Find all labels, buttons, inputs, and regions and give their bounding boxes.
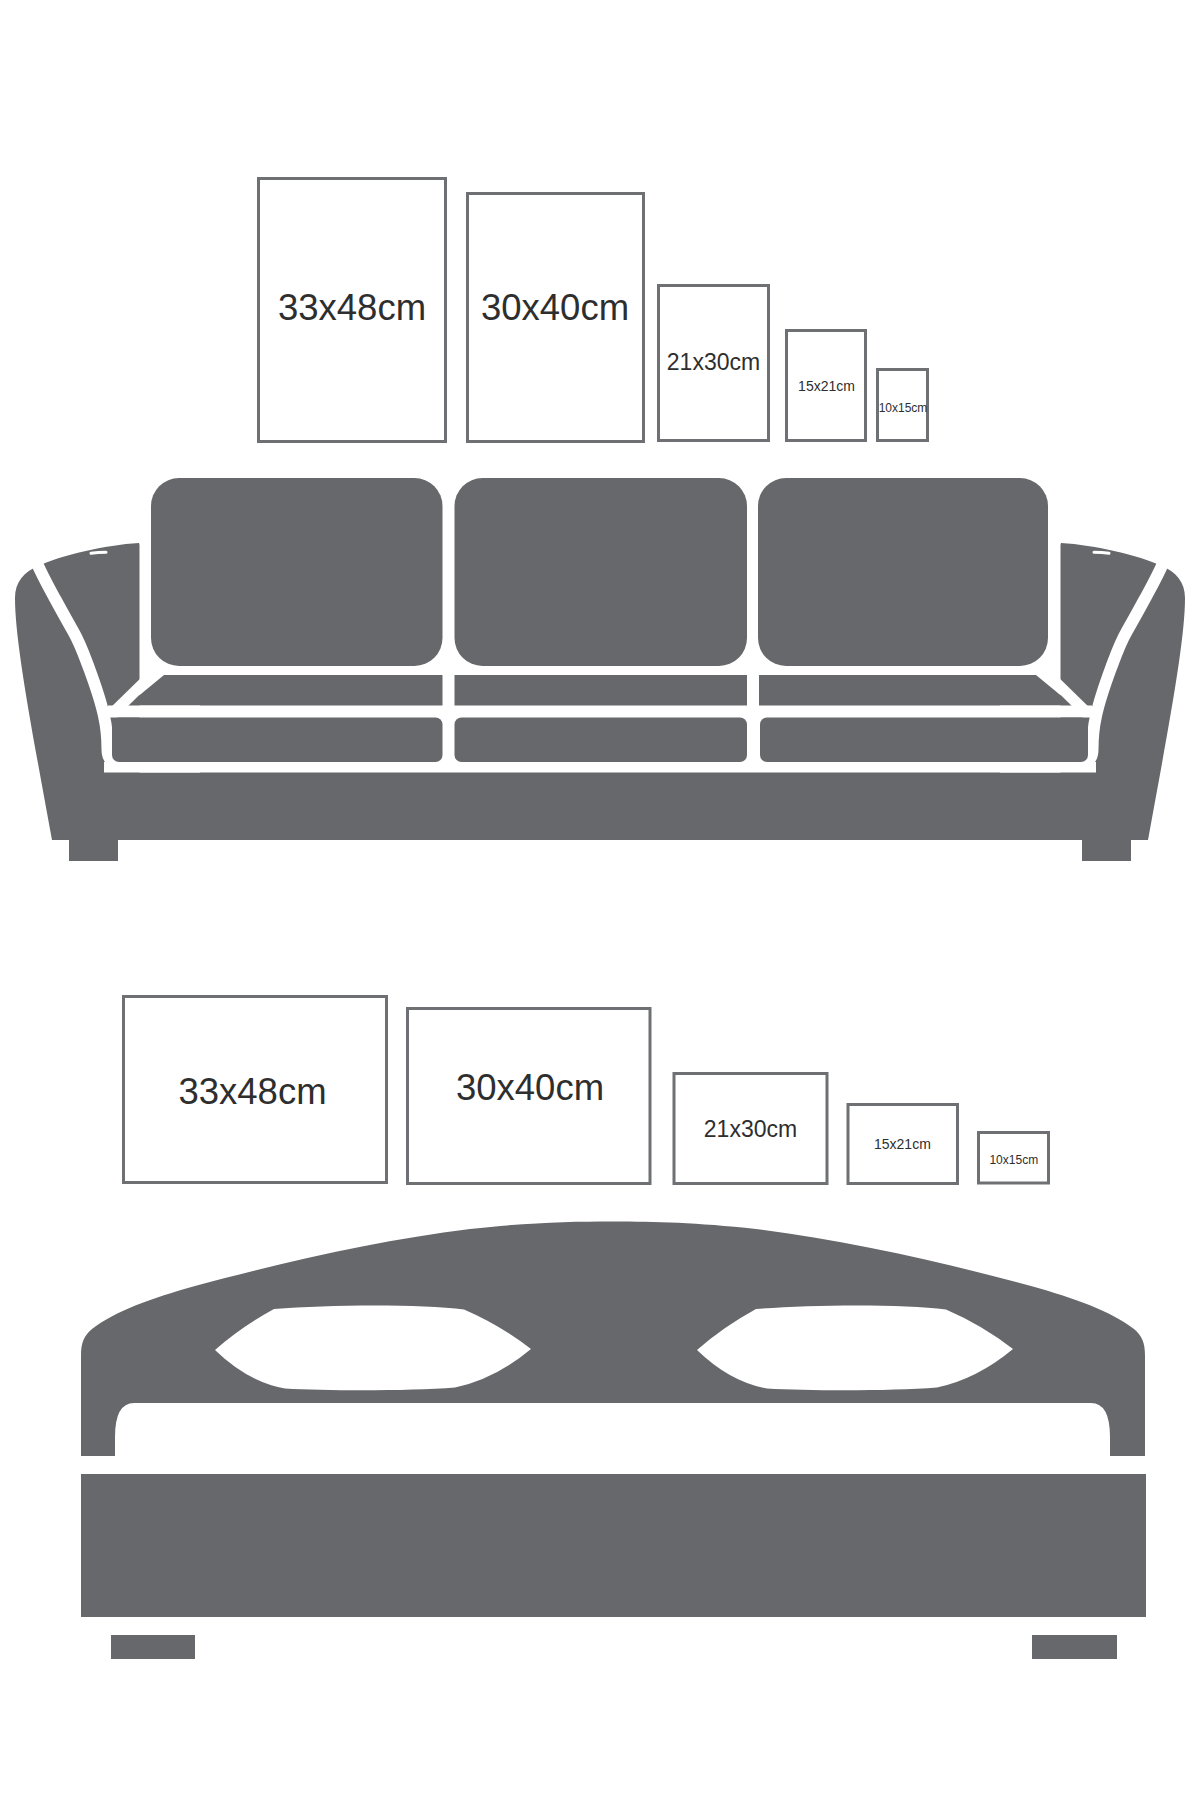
svg-text:15x21cm: 15x21cm [798,378,855,394]
svg-text:21x30cm: 21x30cm [704,1116,797,1142]
svg-text:33x48cm: 33x48cm [278,287,426,328]
svg-text:15x21cm: 15x21cm [874,1136,931,1152]
svg-text:10x15cm: 10x15cm [879,401,928,415]
svg-text:30x40cm: 30x40cm [481,287,629,328]
svg-text:33x48cm: 33x48cm [178,1071,326,1112]
svg-text:30x40cm: 30x40cm [456,1067,604,1108]
svg-text:10x15cm: 10x15cm [989,1153,1038,1167]
svg-text:21x30cm: 21x30cm [667,349,760,375]
